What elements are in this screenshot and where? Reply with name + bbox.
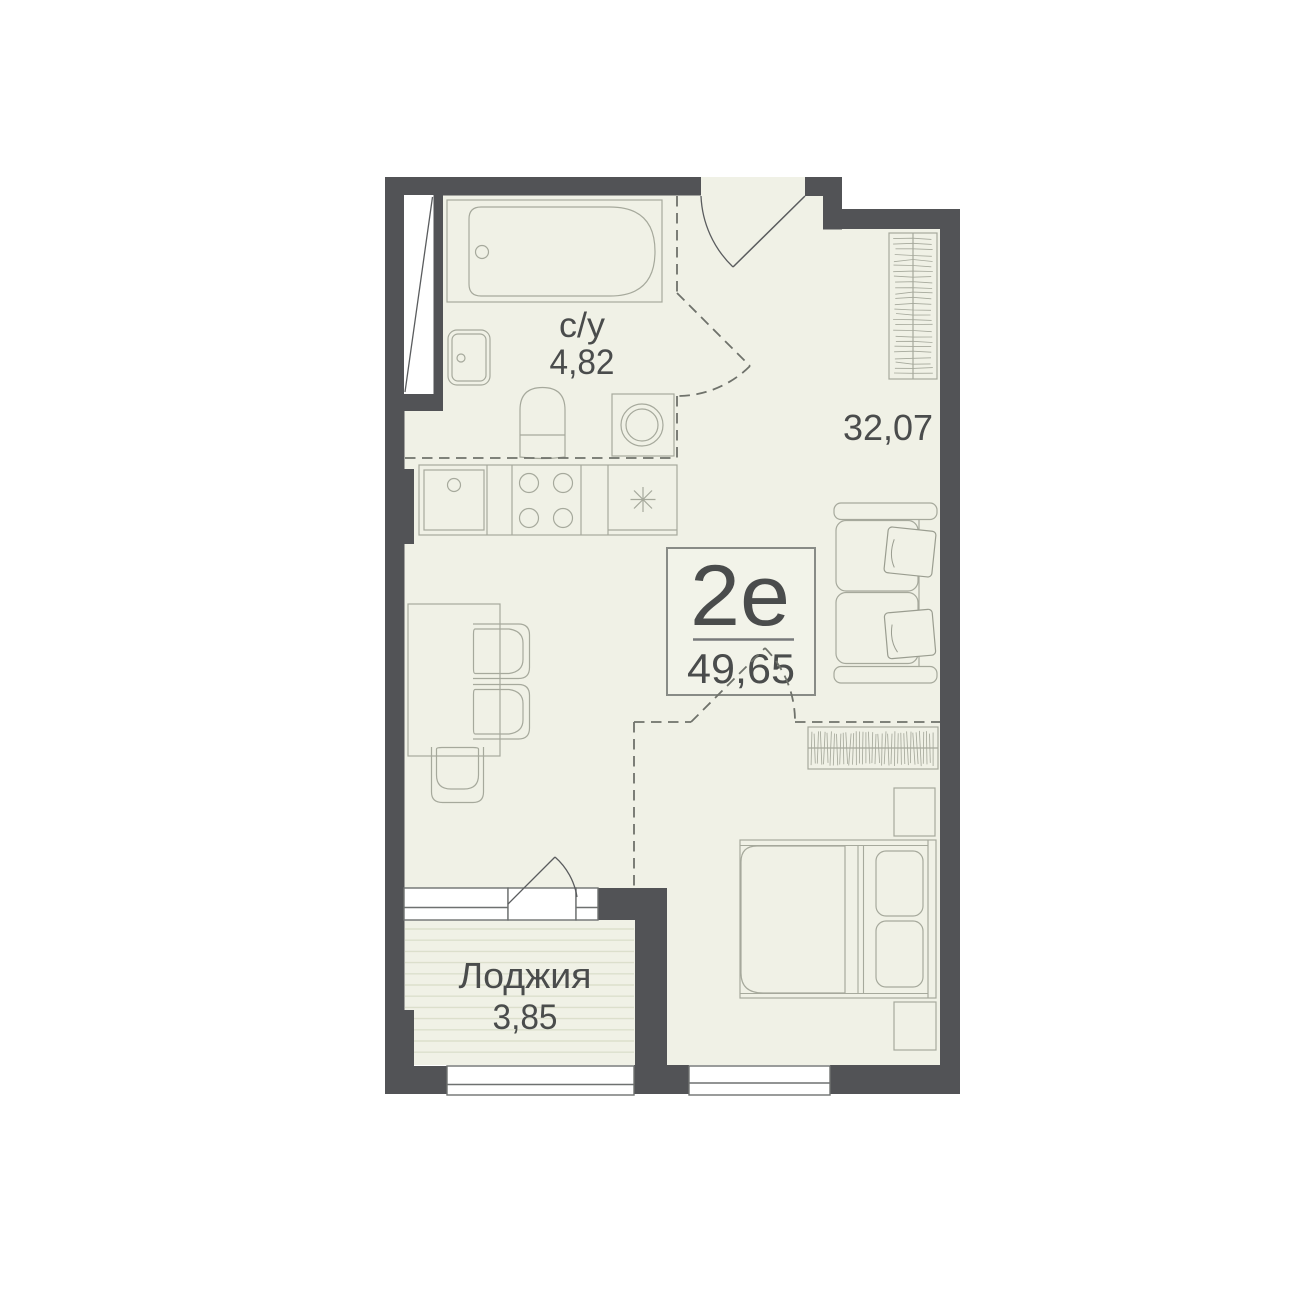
svg-text:4,82: 4,82 [550, 343, 615, 382]
svg-text:32,07: 32,07 [843, 407, 933, 448]
svg-text:2е: 2е [690, 548, 790, 644]
svg-text:3,85: 3,85 [493, 998, 558, 1037]
svg-text:с/у: с/у [559, 306, 606, 345]
svg-text:Лоджия: Лоджия [459, 955, 592, 996]
svg-text:49,65: 49,65 [687, 645, 795, 692]
